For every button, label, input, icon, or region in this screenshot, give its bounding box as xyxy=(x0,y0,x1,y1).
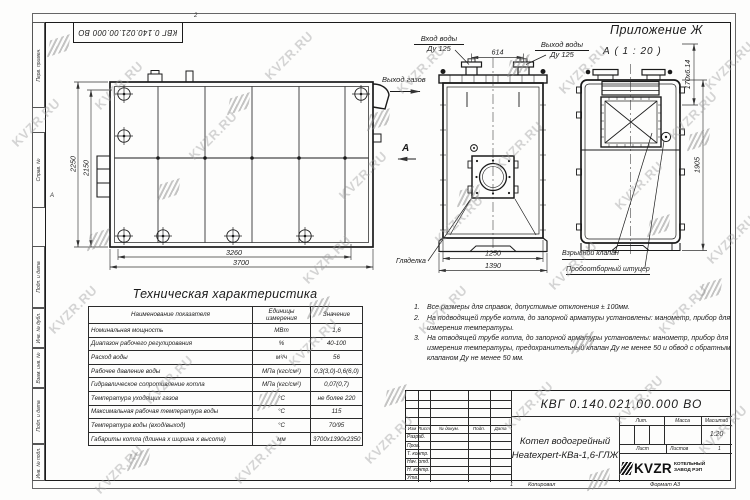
role-row-label: Утв. xyxy=(407,474,430,482)
spec-col-header: Наименование показателя xyxy=(89,307,253,324)
spec-param-name: Максимальная рабочая температура воды xyxy=(89,405,253,419)
sight-glass-label: Гляделка xyxy=(396,258,426,266)
product-name: Котел водогрейный Heatexpert-КВа-1,6-ГЛЖ xyxy=(511,416,619,482)
product-name-line2: Heatexpert-КВа-1,6-ГЛЖ xyxy=(512,449,618,463)
spec-row: Расход водым³/ч56 xyxy=(89,351,363,365)
spec-param-unit: °С xyxy=(253,391,311,405)
spec-param-name: Диапазон рабочего регулирования xyxy=(89,337,253,351)
dim-1250: 1250 xyxy=(485,249,501,258)
spec-param-value: 1,6 xyxy=(311,324,363,338)
spec-table: Наименование показателяЕдиницы измерения… xyxy=(88,306,363,446)
spec-param-value: 70/95 xyxy=(311,419,363,433)
drawing-sheet: 2 А Перв. примен.Справ. №Подп. и датаИнв… xyxy=(0,0,750,500)
dim-3700: 3700 xyxy=(233,258,249,267)
rev-header-cell: № докум. xyxy=(430,425,468,433)
rev-header-cell: Дата xyxy=(490,425,511,433)
spec-row: Габариты котла (длинна х ширина х высота… xyxy=(89,432,363,446)
spec-table-header-row: Наименование показателяЕдиницы измерения… xyxy=(89,307,363,324)
front-view: 614 1250 1390 xyxy=(439,48,547,274)
flue-gas-duct xyxy=(373,84,389,109)
water-inlet-line2: Ду 125 xyxy=(414,45,464,54)
side-flange xyxy=(97,156,110,197)
sampling-fitting-label: Пробоотборный штуцер xyxy=(566,266,650,276)
product-name-line1: Котел водогрейный xyxy=(520,435,610,449)
bolt-symbols xyxy=(115,85,370,245)
spec-param-unit: мм xyxy=(253,432,311,446)
spec-param-value: 40-100 xyxy=(311,337,363,351)
rev-header-cell: Подп. xyxy=(468,425,490,433)
note-text: Все размеры для справок, допустимые откл… xyxy=(427,303,732,313)
spec-param-name: Температура уходящих газов xyxy=(89,391,253,405)
sheet-label: Лист xyxy=(619,446,666,452)
spec-param-name: Габариты котла (длинна х ширина х высота… xyxy=(89,432,253,446)
spec-param-value: 115 xyxy=(311,405,363,419)
water-nozzles xyxy=(462,59,534,75)
side-view: 2250 2150 3260 3700 xyxy=(69,71,390,271)
spec-col-header: Единицы измерения xyxy=(253,307,311,324)
spec-param-name: Гидравлическое сопротивление котла xyxy=(89,378,253,392)
rev-header-cell: Изм xyxy=(406,425,418,433)
spec-col-header: Значение xyxy=(311,307,363,324)
role-row-label: Разраб. xyxy=(407,433,430,441)
explosion-valve-label: Взрывной клапан xyxy=(562,250,619,260)
notes-list: 1.Все размеры для справок, допустимые от… xyxy=(414,303,732,365)
dim-614: 614 xyxy=(492,48,504,57)
spec-param-name: Расход воды xyxy=(89,351,253,365)
spec-row: Диапазон рабочего регулирования%40-100 xyxy=(89,337,363,351)
dim-1905: 1905 xyxy=(693,156,702,173)
role-row-label: Н. контр. xyxy=(407,466,430,474)
side-stub xyxy=(373,134,381,142)
side-view-dims xyxy=(74,82,373,270)
spec-param-name: Температура воды (вход/выход) xyxy=(89,419,253,433)
spec-param-unit: °С xyxy=(253,405,311,419)
spec-param-value: 3700х1390х2350 xyxy=(311,432,363,446)
spec-param-unit: % xyxy=(253,337,311,351)
dim-3260: 3260 xyxy=(226,248,242,257)
gas-outlet-label: Выход газов xyxy=(382,76,426,85)
spec-row: Температура воды (вход/выход)°С70/95 xyxy=(89,419,363,433)
scale-value: 1:20 xyxy=(701,431,732,438)
mass-label: Масса xyxy=(664,418,701,424)
spec-param-unit: МПа (кгс/см²) xyxy=(253,364,311,378)
scale-label: Масштаб xyxy=(701,418,732,424)
note-text: На подводящей трубе котла, до запорной а… xyxy=(427,314,732,334)
rear-top-stubs xyxy=(593,70,665,81)
lit-label: Лит. xyxy=(619,418,664,424)
sheets-value: 1 xyxy=(718,446,721,452)
spec-param-unit: °С xyxy=(253,419,311,433)
explosion-valve-panel xyxy=(601,97,661,147)
title-block: КВГ 0.140.021.00.000 ВО Котел водогрейны… xyxy=(405,390,731,481)
spec-param-value: не более 220 xyxy=(311,391,363,405)
top-hatch xyxy=(148,71,162,83)
spec-param-unit: МПа (кгс/см²) xyxy=(253,378,311,392)
spec-param-unit: м³/ч xyxy=(253,351,311,365)
note-number: 1. xyxy=(414,303,427,313)
note-item: 1.Все размеры для справок, допустимые от… xyxy=(414,303,732,313)
spec-param-unit: МВт xyxy=(253,324,311,338)
spec-param-value: 0,07(0,7) xyxy=(311,378,363,392)
dim-2150: 2150 xyxy=(82,160,91,177)
note-item: 2.На подводящей трубе котла, до запорной… xyxy=(414,314,732,334)
note-number: 3. xyxy=(414,334,427,363)
spec-row: Гидравлическое сопротивление котлаМПа (к… xyxy=(89,378,363,392)
rear-view: 1905 170х6.14 xyxy=(577,44,708,255)
spec-table-title: Техническая характеристика xyxy=(88,287,362,301)
rev-header-cell: Лист xyxy=(418,425,430,433)
copied-number: 1 xyxy=(510,482,513,488)
kvzr-logo-icon xyxy=(620,462,634,475)
copied-label: Копировал xyxy=(528,482,555,488)
spec-row: Номинальная мощностьМВт1,6 xyxy=(89,324,363,338)
note-item: 3.На отводящей трубе котла, до запорной … xyxy=(414,334,732,363)
spec-param-name: Номинальная мощность xyxy=(89,324,253,338)
water-inlet-label: Вход воды Ду 125 xyxy=(414,35,464,54)
format-label: Формат А3 xyxy=(650,482,680,488)
role-row-label: Пров. xyxy=(407,442,430,450)
company-logo: KVZR КОТЕЛЬНЫЙ ЗАВОД РЭП xyxy=(621,455,731,481)
view-arrow-letter: А xyxy=(402,143,409,155)
spec-row: Температура уходящих газов°Сне более 220 xyxy=(89,391,363,405)
water-outlet-label: Выход воды Ду 125 xyxy=(535,41,589,60)
spec-row: Максимальная рабочая температура воды°С1… xyxy=(89,405,363,419)
company-name: КОТЕЛЬНЫЙ ЗАВОД РЭП xyxy=(674,462,705,474)
note-text: На отводящей трубе котла, до запорной ар… xyxy=(427,334,732,363)
spec-param-value: 0,3(3,0)-0,6(6,0) xyxy=(311,364,363,378)
spec-param-name: Рабочее давление воды xyxy=(89,364,253,378)
dim-1390: 1390 xyxy=(485,261,501,270)
kvzr-logo-text: KVZR xyxy=(634,461,672,476)
role-row-label: Т. контр. xyxy=(407,450,430,458)
water-outlet-line2: Ду 125 xyxy=(535,51,589,60)
sheets-label: Листов xyxy=(670,446,688,452)
top-vent xyxy=(186,71,193,82)
note-number: 2. xyxy=(414,314,427,334)
spec-row: Рабочее давление водыМПа (кгс/см²)0,3(3,… xyxy=(89,364,363,378)
dim-170x6: 170х6.14 xyxy=(683,60,692,90)
role-row-label: Нач. отд. xyxy=(407,458,430,466)
dim-2250: 2250 xyxy=(69,156,78,173)
spec-param-value: 56 xyxy=(311,351,363,365)
title-block-doc-number: КВГ 0.140.021.00.000 ВО xyxy=(511,391,732,416)
